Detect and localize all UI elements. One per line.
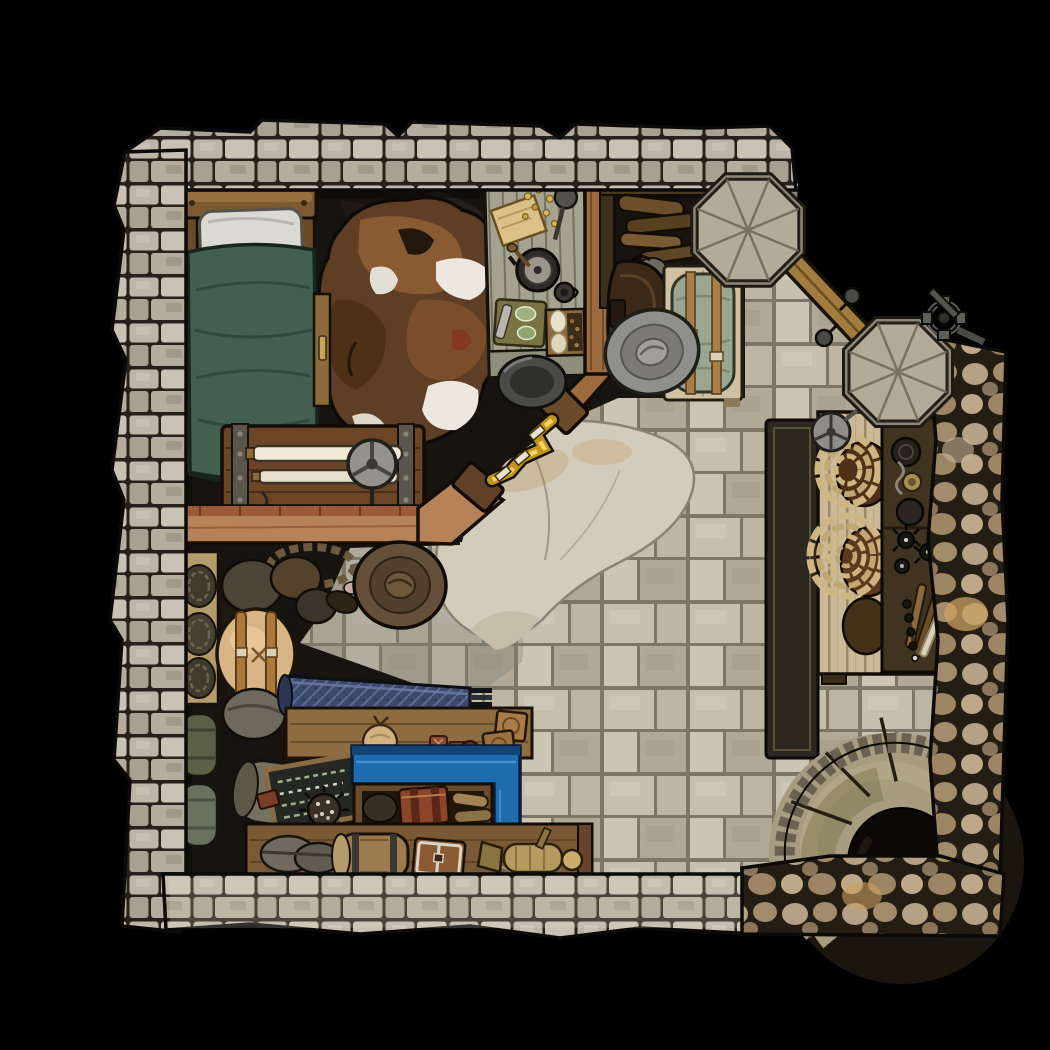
lit-stone [944, 597, 988, 631]
bed-side-rail [314, 294, 330, 406]
floor-mat [766, 420, 818, 758]
prep-table [485, 183, 590, 378]
beam-knob [816, 330, 832, 346]
cowhide-rug [318, 198, 502, 445]
lit-stone [842, 882, 882, 910]
grappling-hook [895, 559, 909, 573]
barrel [332, 834, 408, 878]
greens [517, 326, 536, 340]
rail-handle [319, 336, 326, 360]
dark-bag [363, 794, 397, 822]
bread-crate [546, 309, 585, 356]
cutting-board [494, 299, 547, 347]
bundle [454, 809, 493, 824]
bedside-chest [222, 424, 424, 512]
north-wall [125, 120, 796, 190]
greens [515, 306, 536, 321]
strapped-chest [399, 786, 449, 825]
rope-coil [183, 658, 215, 698]
battle-map-canvas[interactable] [0, 0, 1050, 1050]
north-pillar [692, 174, 805, 287]
map-artwork [0, 0, 1050, 1050]
metal-basin [498, 356, 566, 408]
bedroll-strap [712, 272, 721, 394]
east-wall [927, 336, 1008, 880]
south-east-cobble-wall [742, 856, 1004, 936]
